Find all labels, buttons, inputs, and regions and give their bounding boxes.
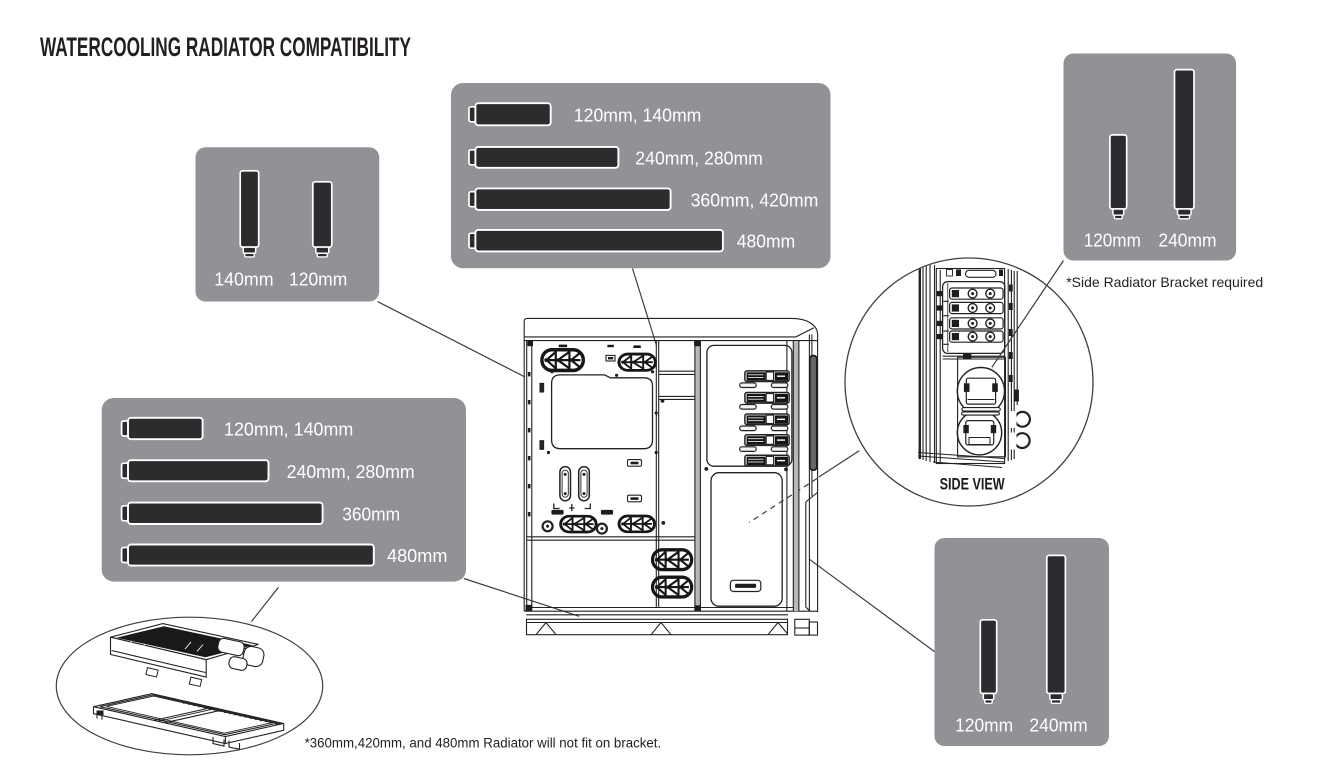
- svg-text:480mm: 480mm: [387, 546, 448, 566]
- svg-text:120mm, 140mm: 120mm, 140mm: [224, 420, 353, 440]
- svg-text:120mm: 120mm: [1084, 231, 1141, 251]
- svg-text:240mm, 280mm: 240mm, 280mm: [635, 149, 763, 169]
- svg-text:120mm, 140mm: 120mm, 140mm: [574, 105, 702, 125]
- svg-text:480mm: 480mm: [737, 232, 795, 252]
- svg-text:240mm, 280mm: 240mm, 280mm: [287, 462, 415, 482]
- svg-text:*Side Radiator Bracket require: *Side Radiator Bracket required: [1066, 274, 1263, 290]
- svg-text:240mm: 240mm: [1029, 716, 1087, 736]
- svg-text:240mm: 240mm: [1158, 231, 1216, 251]
- svg-text:360mm, 420mm: 360mm, 420mm: [691, 190, 819, 210]
- svg-text:SIDE VIEW: SIDE VIEW: [940, 475, 1005, 493]
- svg-text:*360mm,420mm, and 480mm Radiat: *360mm,420mm, and 480mm Radiator will no…: [305, 735, 662, 750]
- svg-text:120mm: 120mm: [289, 270, 347, 290]
- svg-text:120mm: 120mm: [955, 716, 1013, 736]
- svg-text:140mm: 140mm: [214, 270, 273, 290]
- svg-text:WATERCOOLING RADIATOR COMPATIB: WATERCOOLING RADIATOR COMPATIBILITY: [40, 32, 411, 62]
- svg-text:360mm: 360mm: [342, 504, 400, 524]
